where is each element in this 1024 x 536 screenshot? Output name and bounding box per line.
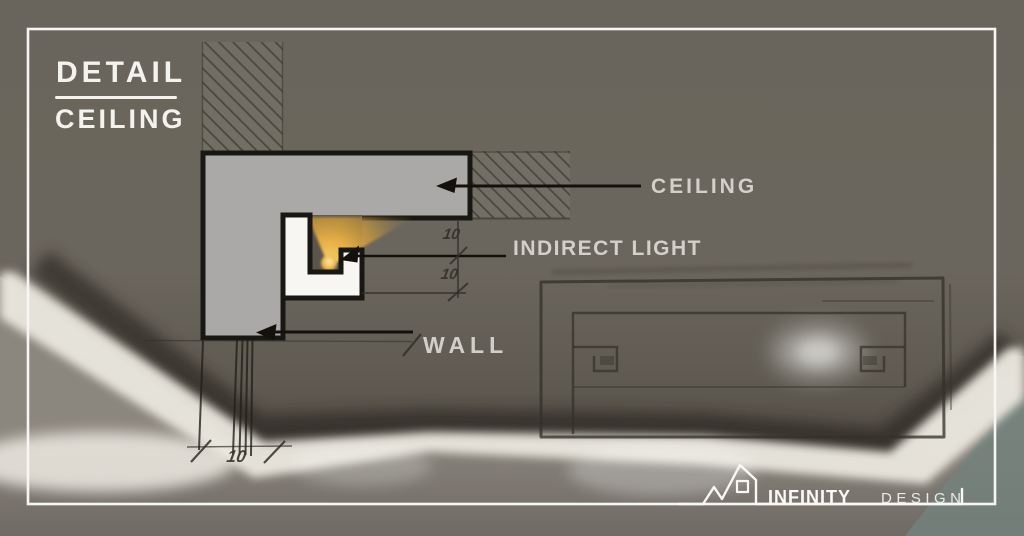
poster-canvas: DETAIL CEILING CEILING INDIRECT LIGHT WA…	[0, 0, 1024, 536]
hatch-wall-above-lines	[202, 42, 283, 151]
title-detail: DETAIL	[56, 58, 186, 88]
title-underline	[55, 96, 177, 99]
title-ceiling: CEILING	[55, 106, 186, 133]
greek-key-left-fill	[600, 356, 614, 365]
molding-stray-line	[950, 284, 951, 410]
dimension-wall-thickness: 10	[226, 448, 248, 465]
greek-key-right-fill	[863, 356, 877, 365]
led-light	[321, 255, 337, 271]
logo-brand-name: INFINITY	[768, 488, 851, 506]
callout-indirect-light: INDIRECT LIGHT	[513, 238, 702, 259]
wall-glow-left	[292, 446, 432, 486]
logo-brand-suffix: DESIGN	[881, 491, 966, 506]
dimension-ceiling-offset: 10	[442, 227, 461, 242]
callout-ceiling: CEILING	[651, 176, 757, 197]
dimension-cove-depth: 10	[440, 267, 459, 282]
panel-light-spot-core	[796, 338, 840, 366]
callout-wall: WALL	[423, 334, 508, 357]
